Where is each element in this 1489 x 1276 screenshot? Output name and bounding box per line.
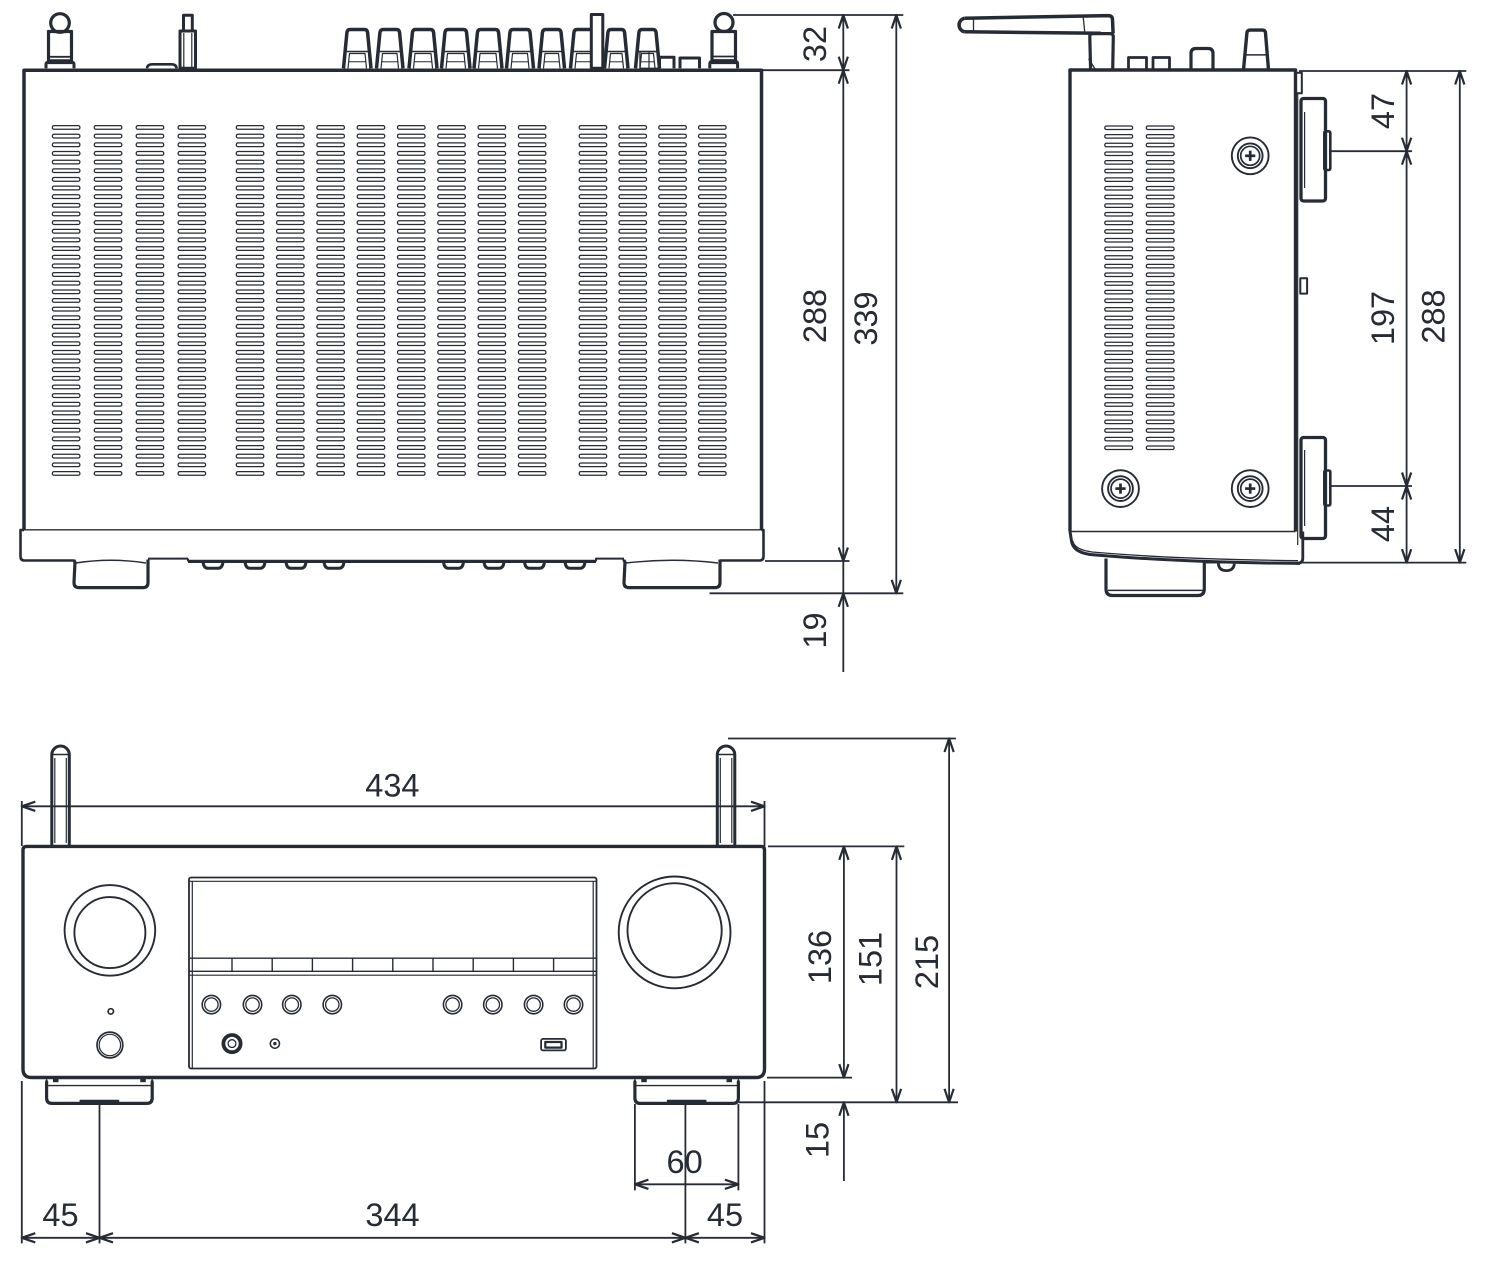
svg-text:60: 60 bbox=[667, 1144, 703, 1180]
svg-text:288: 288 bbox=[797, 289, 833, 343]
svg-text:215: 215 bbox=[909, 935, 945, 989]
svg-text:47: 47 bbox=[1365, 93, 1401, 129]
svg-text:45: 45 bbox=[707, 1197, 743, 1233]
svg-text:151: 151 bbox=[853, 932, 889, 986]
svg-text:45: 45 bbox=[42, 1197, 78, 1233]
svg-text:339: 339 bbox=[848, 291, 884, 345]
svg-text:44: 44 bbox=[1365, 506, 1401, 542]
svg-text:344: 344 bbox=[365, 1197, 419, 1233]
svg-text:288: 288 bbox=[1416, 289, 1452, 343]
svg-text:19: 19 bbox=[797, 612, 833, 648]
svg-text:136: 136 bbox=[802, 930, 838, 984]
svg-text:32: 32 bbox=[797, 26, 833, 62]
svg-text:197: 197 bbox=[1365, 291, 1401, 345]
svg-text:15: 15 bbox=[800, 1122, 836, 1158]
svg-text:434: 434 bbox=[365, 768, 419, 804]
